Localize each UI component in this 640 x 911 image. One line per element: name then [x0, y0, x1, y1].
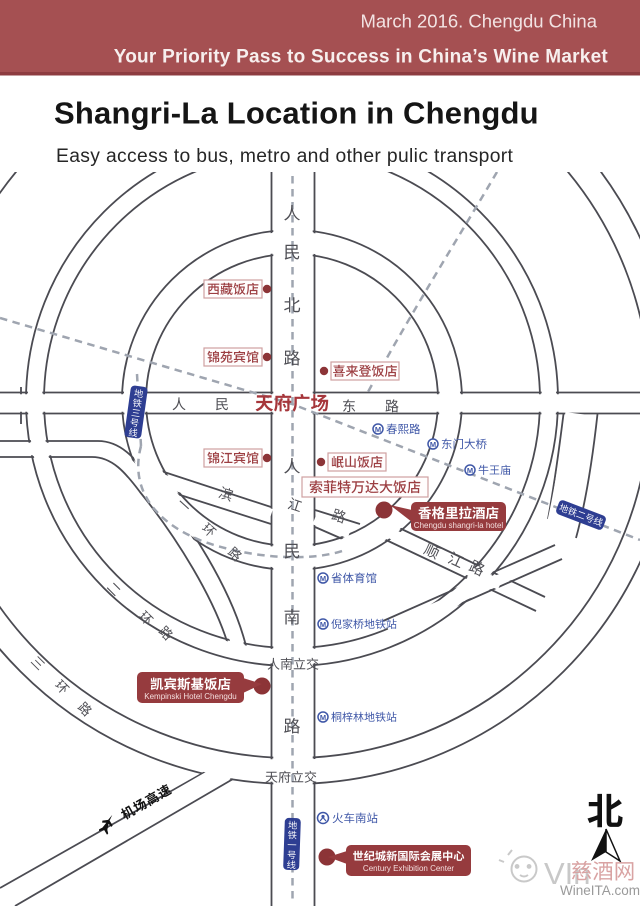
svg-text:Your Priority Pass to Success: Your Priority Pass to Success in China’s… [114, 47, 609, 68]
svg-text:Kempinski Hotel Chengdu: Kempinski Hotel Chengdu [144, 692, 237, 701]
svg-text:M: M [430, 440, 436, 449]
svg-text:M: M [320, 574, 326, 583]
svg-text:Chengdu shangri-la hotel: Chengdu shangri-la hotel [414, 521, 504, 530]
svg-text:M: M [320, 620, 326, 629]
svg-text:M: M [320, 713, 326, 722]
svg-text:M: M [375, 425, 381, 434]
svg-text:March 2016. Chengdu China: March 2016. Chengdu China [360, 11, 597, 32]
svg-text:M: M [467, 466, 473, 475]
svg-text:Century Exhibition Center: Century Exhibition Center [363, 864, 454, 873]
svg-text:Easy access to bus, metro and: Easy access to bus, metro and other puli… [56, 146, 514, 167]
svg-text:Shangri-La Location in Chengdu: Shangri-La Location in Chengdu [54, 96, 539, 131]
svg-text:WineITA.com: WineITA.com [560, 883, 640, 898]
